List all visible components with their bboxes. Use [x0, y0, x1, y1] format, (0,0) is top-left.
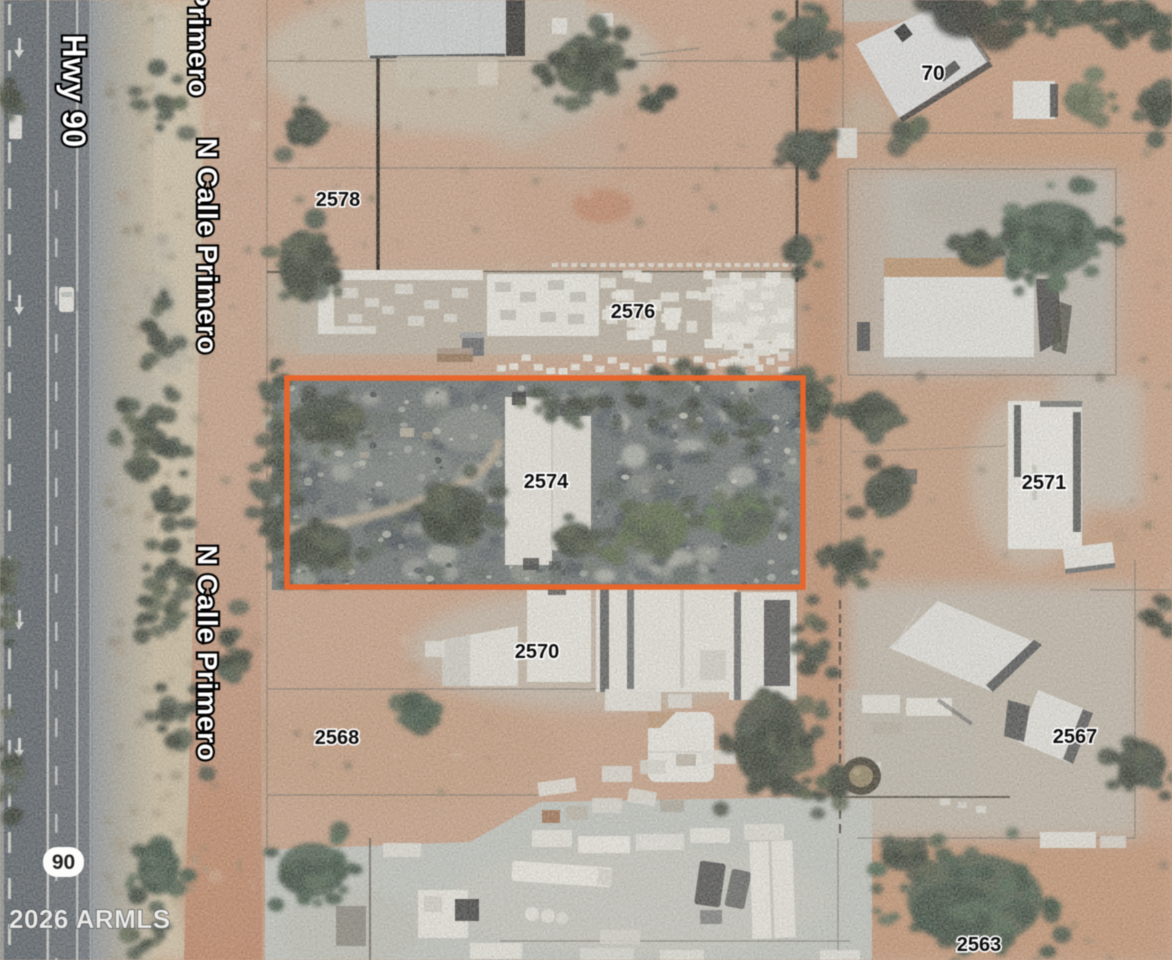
svg-text:2578: 2578: [316, 189, 361, 211]
svg-text:N Calle Primero: N Calle Primero: [183, 0, 214, 97]
svg-text:N Calle Primero: N Calle Primero: [192, 545, 223, 761]
svg-text:2567: 2567: [1053, 726, 1098, 748]
svg-text:N Calle Primero: N Calle Primero: [192, 138, 223, 354]
svg-text:2571: 2571: [1022, 472, 1067, 494]
svg-text:90: 90: [52, 851, 75, 874]
svg-text:2563: 2563: [957, 934, 1002, 956]
svg-text:2574: 2574: [524, 471, 569, 493]
svg-text:2576: 2576: [611, 301, 656, 323]
svg-text:70: 70: [921, 62, 944, 85]
svg-text:2570: 2570: [515, 641, 560, 663]
svg-text:2568: 2568: [315, 727, 360, 749]
svg-text:Hwy 90: Hwy 90: [56, 34, 92, 147]
svg-text:2026 ARMLS: 2026 ARMLS: [9, 904, 171, 934]
